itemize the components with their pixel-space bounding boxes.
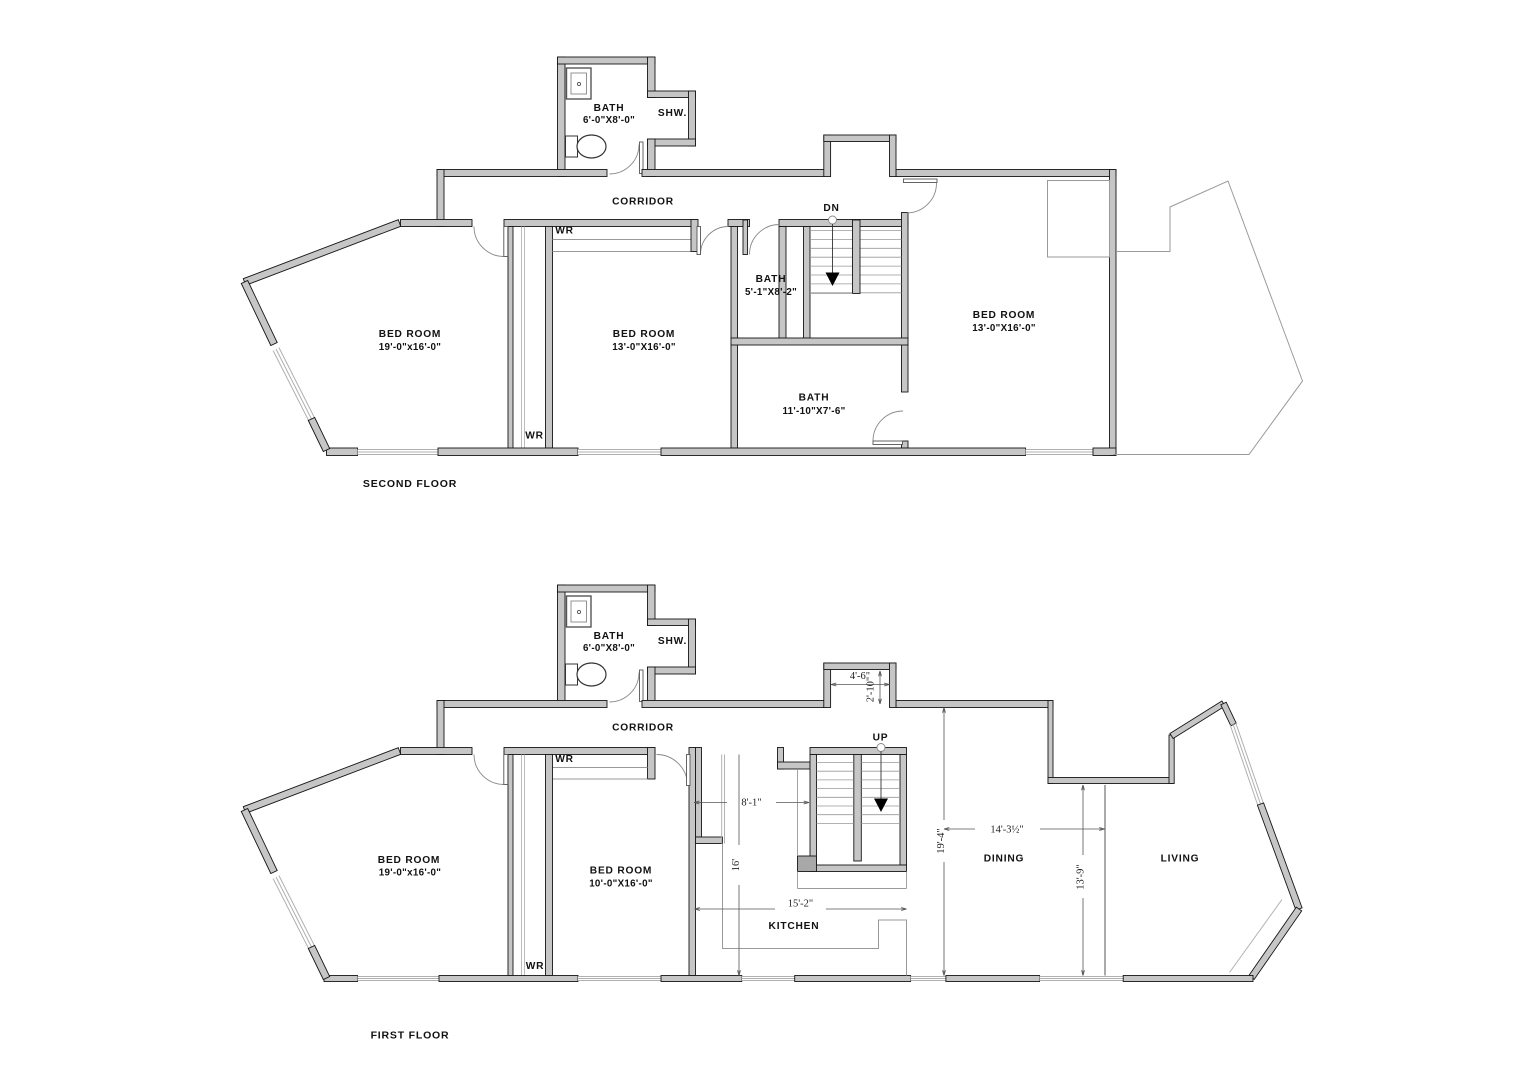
svg-text:LIVING: LIVING	[1161, 854, 1200, 865]
svg-text:11'-10"X7'-6": 11'-10"X7'-6"	[782, 406, 845, 417]
svg-text:WR: WR	[526, 961, 545, 972]
svg-text:KITCHEN: KITCHEN	[769, 921, 820, 932]
svg-text:19'-0"x16'-0": 19'-0"x16'-0"	[379, 342, 442, 353]
svg-text:SHW.: SHW.	[658, 108, 687, 119]
svg-text:SECOND FLOOR: SECOND FLOOR	[363, 478, 457, 490]
svg-text:BED ROOM: BED ROOM	[973, 310, 1035, 321]
svg-text:14'-3½": 14'-3½"	[990, 825, 1023, 836]
svg-text:BED ROOM: BED ROOM	[613, 329, 675, 340]
svg-text:DINING: DINING	[984, 854, 1024, 865]
svg-text:BATH: BATH	[594, 103, 625, 114]
svg-text:SHW.: SHW.	[658, 636, 687, 647]
svg-text:10'-0"X16'-0": 10'-0"X16'-0"	[589, 879, 653, 890]
svg-text:UP: UP	[873, 733, 889, 744]
svg-text:BED ROOM: BED ROOM	[590, 866, 652, 877]
svg-text:DN: DN	[823, 203, 839, 214]
svg-text:BED ROOM: BED ROOM	[379, 329, 441, 340]
svg-text:WR: WR	[555, 754, 574, 765]
svg-text:6'-0"X8'-0": 6'-0"X8'-0"	[583, 643, 635, 654]
svg-text:WR: WR	[525, 431, 544, 442]
svg-text:WR: WR	[555, 226, 574, 237]
svg-text:BATH: BATH	[594, 631, 625, 642]
svg-text:CORRIDOR: CORRIDOR	[612, 197, 674, 208]
svg-text:19'-4": 19'-4"	[936, 828, 947, 853]
svg-text:5'-1"X8'-2": 5'-1"X8'-2"	[745, 287, 797, 298]
svg-text:13'-0"X16'-0": 13'-0"X16'-0"	[972, 323, 1036, 334]
svg-text:BATH: BATH	[756, 274, 787, 285]
svg-text:6'-0"X8'-0": 6'-0"X8'-0"	[583, 115, 635, 126]
svg-text:BED ROOM: BED ROOM	[378, 855, 440, 866]
svg-text:16': 16'	[731, 859, 742, 872]
svg-text:15'-2": 15'-2"	[788, 899, 813, 910]
svg-text:8'-1": 8'-1"	[741, 798, 761, 809]
svg-text:CORRIDOR: CORRIDOR	[612, 723, 674, 734]
svg-text:2'-10": 2'-10"	[866, 677, 877, 702]
svg-text:19'-0"x16'-0": 19'-0"x16'-0"	[379, 868, 442, 879]
svg-text:FIRST FLOOR: FIRST FLOOR	[371, 1030, 450, 1042]
svg-text:13'-9": 13'-9"	[1075, 864, 1086, 889]
svg-text:BATH: BATH	[799, 393, 830, 404]
svg-text:13'-0"X16'-0": 13'-0"X16'-0"	[612, 342, 676, 353]
